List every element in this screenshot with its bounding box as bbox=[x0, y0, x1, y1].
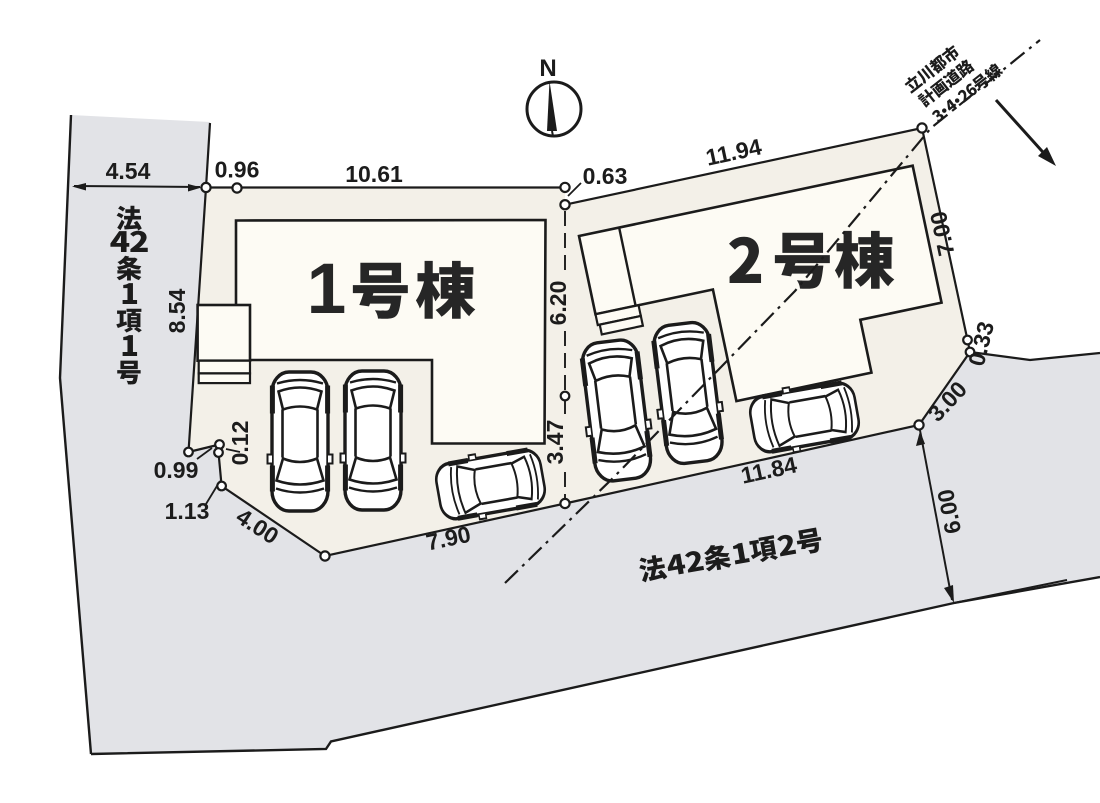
svg-text:10.61: 10.61 bbox=[345, 161, 403, 187]
svg-text:4.54: 4.54 bbox=[106, 158, 151, 184]
svg-text:0.12: 0.12 bbox=[227, 421, 253, 466]
svg-text:0.96: 0.96 bbox=[215, 157, 260, 183]
svg-text:6.20: 6.20 bbox=[545, 281, 571, 326]
svg-text:0.99: 0.99 bbox=[154, 457, 199, 483]
svg-text:1.13: 1.13 bbox=[165, 498, 210, 524]
svg-text:8.54: 8.54 bbox=[164, 288, 190, 333]
svg-text:3.47: 3.47 bbox=[542, 420, 568, 465]
svg-text:0.63: 0.63 bbox=[583, 163, 628, 189]
svg-text:N: N bbox=[539, 55, 556, 82]
svg-text:1: 1 bbox=[307, 250, 347, 329]
